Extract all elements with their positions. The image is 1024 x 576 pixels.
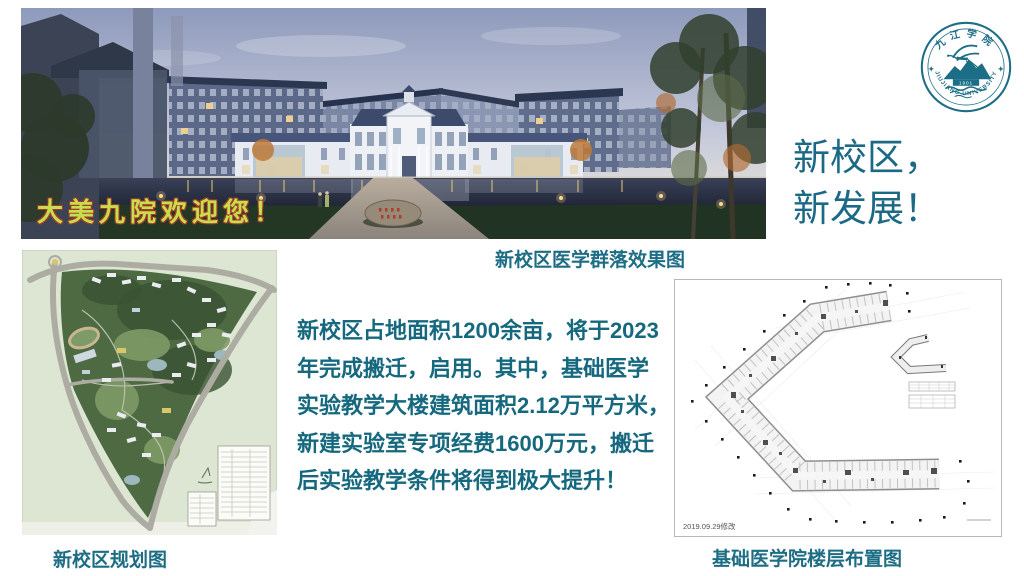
hero-caption: 新校区医学群落效果图 [495, 245, 685, 272]
paragraph-line: 后实验教学条件将得到极大提升！ [297, 462, 683, 500]
paragraph-line: 新校区占地面积1200余亩，将于2023 [297, 312, 683, 350]
campus-master-plan-image [22, 250, 277, 535]
logo-year: 1901 [959, 81, 973, 86]
floor-plan-image: 2019.09.29修改 [674, 279, 1002, 537]
body-paragraph: 新校区占地面积1200余亩，将于2023 年完成搬迁，启用。其中，基础医学 实验… [297, 312, 683, 500]
floor-plan-caption: 基础医学院楼层布置图 [712, 544, 902, 571]
master-plan-caption: 新校区规划图 [53, 545, 167, 572]
paragraph-line: 实验教学大楼建筑面积2.12万平方米， [297, 387, 683, 425]
paragraph-line: 年完成搬迁，启用。其中，基础医学 [297, 350, 683, 388]
campus-rendering-image: 大美九院欢迎您！ [21, 8, 766, 239]
university-logo: 九江学院 JIUJIANG UNIVERSITY 1901 [919, 20, 1013, 114]
university-logo-icon: 九江学院 JIUJIANG UNIVERSITY 1901 [919, 20, 1013, 114]
paragraph-line: 新建实验室专项经费1600万元，搬迁 [297, 425, 683, 463]
master-plan-drawing [22, 250, 277, 535]
slide-title: 新校区， 新发展！ [793, 132, 941, 234]
slide-title-line1: 新校区， [793, 132, 941, 183]
plan-date-note: 2019.09.29修改 [683, 521, 736, 531]
welcome-overlay-text: 大美九院欢迎您！ [37, 192, 285, 229]
plan-tables [909, 382, 955, 408]
slide-title-line2: 新发展！ [793, 183, 941, 234]
presentation-slide: 大美九院欢迎您！ 九江学院 JIUJIANG UNIVERSITY [0, 0, 1024, 576]
floor-plan-drawing: 2019.09.29修改 [675, 280, 1001, 536]
